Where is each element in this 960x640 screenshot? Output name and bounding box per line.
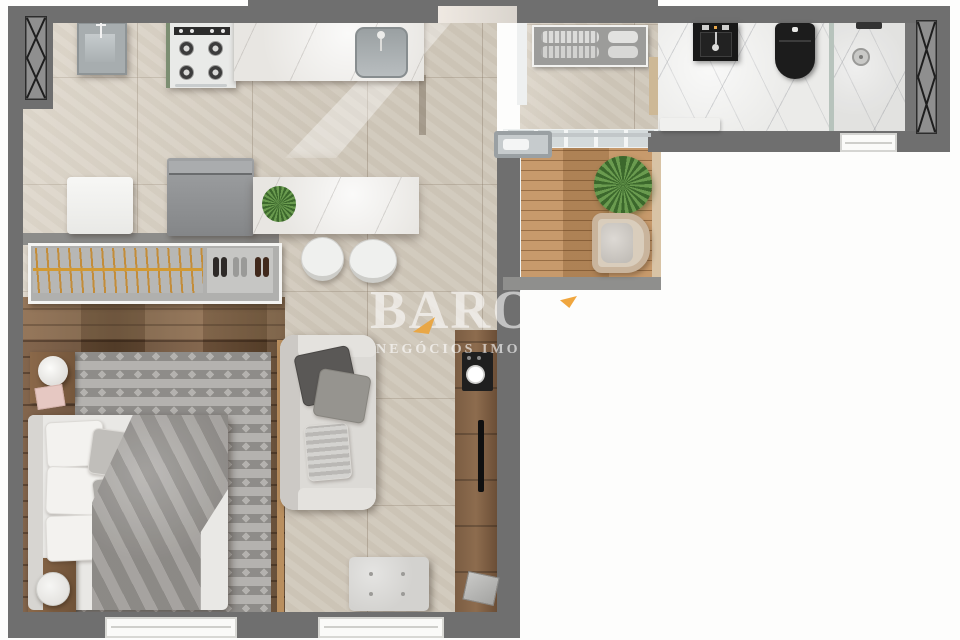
sliding-door-stack [494,131,552,158]
kitchen-sink [355,27,408,78]
linen-bundle [608,46,638,58]
tuft-button [401,592,405,596]
stove-knob [179,29,183,33]
bathroom-bench [660,118,720,131]
linen-closet [532,25,648,67]
stove-knob [190,29,194,33]
shoe-icon [255,257,261,277]
window [318,617,444,638]
gray-cabinet [167,158,254,236]
window-glass-line [845,142,892,144]
bathroom-vanity [693,23,738,61]
burner-icon [208,65,223,80]
platter-icon [466,365,485,384]
stove-green-trim [166,22,170,88]
right-wall [497,131,520,638]
papers [34,384,65,410]
flush-button-icon [792,27,798,32]
toilet [775,23,815,79]
faucet-icon [714,26,717,29]
speaker-turntable [462,352,493,391]
window [105,617,237,638]
linen-bundle [541,46,599,58]
stove [166,22,236,88]
balcony-side-strip [652,146,661,280]
burner-icon [208,41,223,56]
hall-pillar [517,23,527,105]
window-glass-line [324,626,438,628]
wall-tv [478,420,484,492]
hanger-rail [33,268,203,271]
shoe-icon [241,257,247,277]
faucet-icon [100,22,102,38]
linen-bundle [608,31,638,43]
bathroom-window [840,133,897,152]
sofa-pillow-gray [312,368,372,424]
watermark-flag-icon [560,296,577,308]
laundry-basin [85,34,115,62]
knob-icon [477,356,481,360]
shoe-icon [263,257,269,277]
linen-bundle [541,31,599,43]
faucet-handle-icon [702,25,709,30]
wardrobe [28,243,282,304]
laundry-sink [77,22,127,75]
floorplan-render: BARO NEGÓCIOS IMOBILI [0,0,960,640]
balcony-chair [592,213,650,273]
oven-handle [175,84,227,87]
shoe-icon [233,257,239,277]
bar-stool [301,237,344,281]
table-lamp-icon [38,356,68,386]
vent-shaft-icon [25,16,47,100]
balcony-plant-icon [594,156,652,214]
window-glass-line [111,626,231,628]
drain-dot [859,55,863,59]
stove-knob [210,29,214,33]
shower-glass-partition [829,23,834,131]
wing-bottom-wall [648,131,950,152]
stove-knob [221,29,225,33]
bar-stool [349,239,397,283]
ottoman [349,557,429,611]
burner-icon [179,65,194,80]
round-tray-icon [36,572,70,606]
shower-faucet-icon [856,22,882,29]
faucet-icon [377,31,385,39]
entry-door-opening [438,6,517,23]
sofa-pillow-knit [304,422,353,482]
tray [462,571,499,606]
toilet-seat-line [779,40,811,42]
counter-wall-stub [419,75,426,135]
faucet-stem [715,32,717,44]
fridge [67,177,133,234]
chair-cushion [601,223,633,263]
shoe-icon [221,257,227,277]
tuft-button [369,572,373,576]
vent-shaft-icon [916,20,937,134]
faucet-icon [380,39,382,51]
drain-icon [712,44,719,51]
knob-icon [467,356,471,360]
door-handle [503,139,529,150]
tuft-button [369,592,373,596]
shoe-icon [213,257,219,277]
cabinet-lid [169,161,252,175]
tuft-button [401,572,405,576]
burner-icon [179,41,194,56]
sofa-armrest [298,488,376,510]
balcony-bottom-wall [503,277,661,290]
shower-drain-icon [852,48,870,66]
bathroom-door [649,57,658,115]
faucet-handle-icon [722,25,729,30]
potted-plant-icon [262,186,296,222]
shower-floor [833,23,908,131]
